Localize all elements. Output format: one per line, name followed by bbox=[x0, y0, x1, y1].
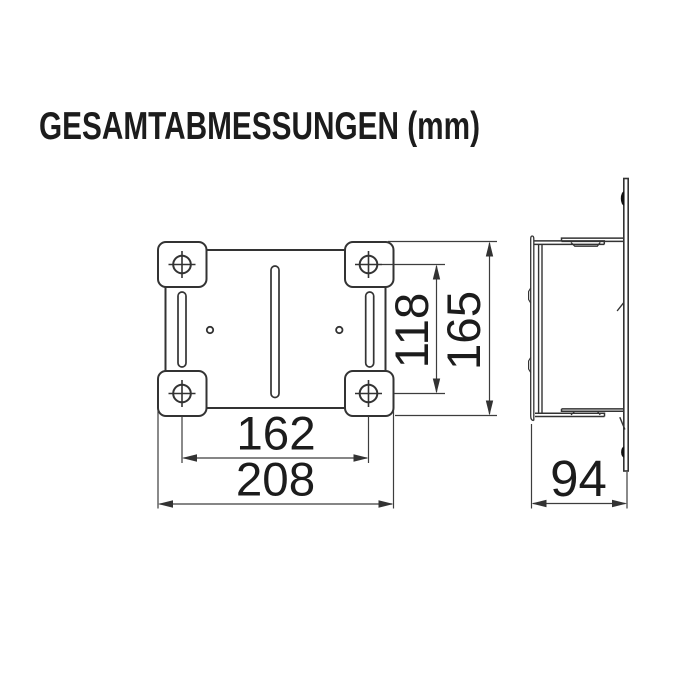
svg-text:118: 118 bbox=[386, 293, 439, 369]
svg-text:GESAMTABMESSUNGEN (mm): GESAMTABMESSUNGEN (mm) bbox=[39, 105, 480, 148]
svg-text:94: 94 bbox=[550, 450, 607, 507]
svg-text:208: 208 bbox=[236, 454, 315, 507]
svg-text:165: 165 bbox=[438, 291, 491, 370]
